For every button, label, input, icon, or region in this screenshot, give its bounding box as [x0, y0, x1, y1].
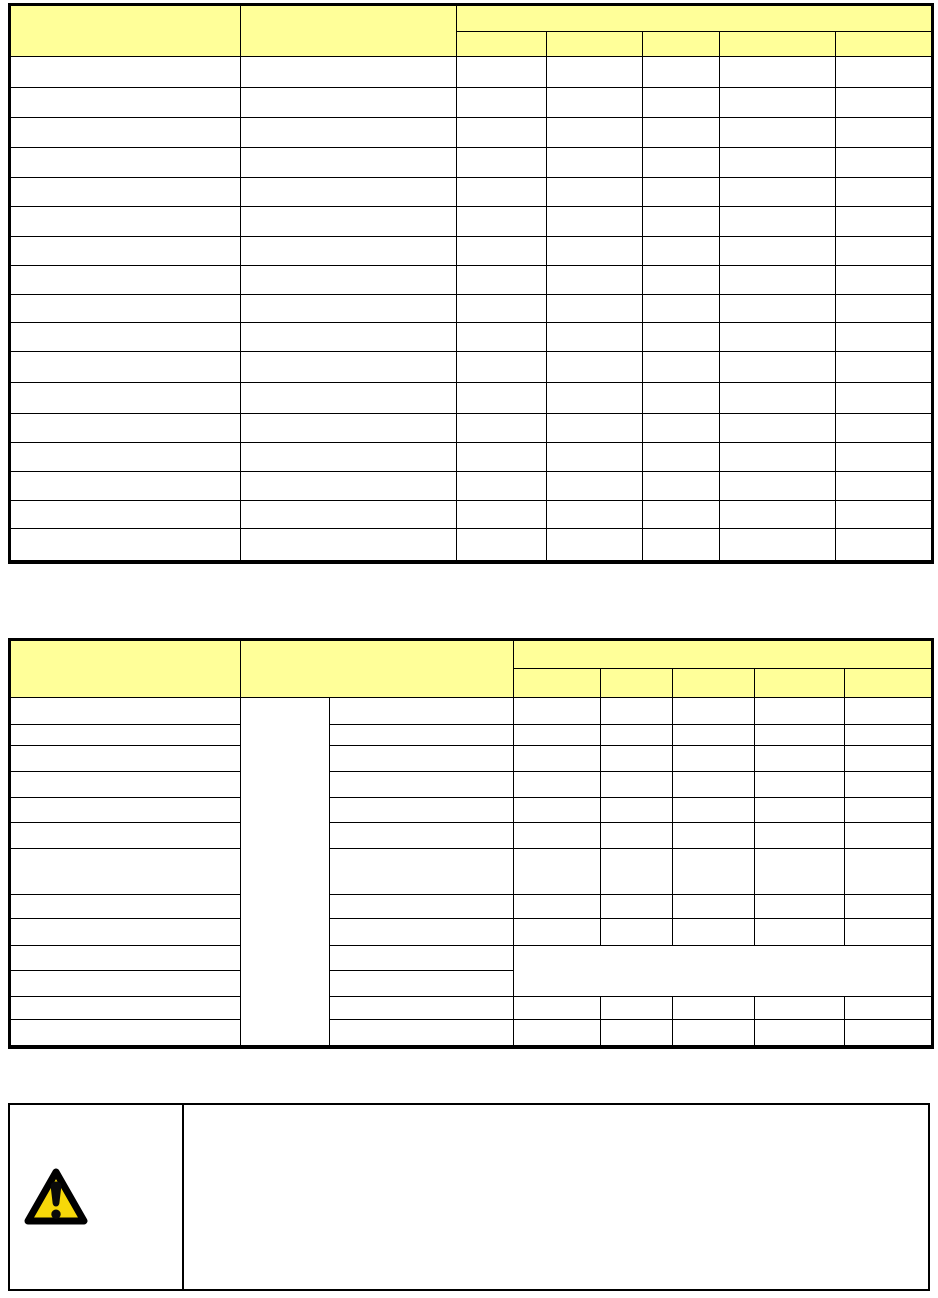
- table1-cell: [547, 57, 643, 88]
- table2-cell: [845, 798, 933, 823]
- table1-cell: [10, 383, 241, 414]
- table2-cell: [601, 798, 673, 823]
- table2-cell: [514, 798, 601, 823]
- table1-cell: [547, 88, 643, 118]
- table1-cell: [10, 148, 241, 178]
- table1-row: [10, 57, 933, 88]
- table2-cell: [330, 946, 514, 971]
- table1-subheader-1: [457, 32, 547, 57]
- table1-cell: [720, 237, 836, 266]
- table1-cell: [836, 352, 933, 383]
- table2-header-col1: [10, 640, 241, 698]
- table1-cell: [241, 529, 457, 562]
- table1-cell: [241, 501, 457, 529]
- table2-subheader-1: [514, 669, 601, 698]
- table2-cell: [330, 823, 514, 849]
- table2-cell: [601, 997, 673, 1020]
- table1-row: [10, 352, 933, 383]
- table2-cell: [673, 772, 755, 798]
- table2-cell: [330, 919, 514, 946]
- table2-cell: [514, 772, 601, 798]
- table2-cell: [10, 798, 241, 823]
- table1-row: [10, 529, 933, 562]
- table2-cell: [10, 946, 241, 971]
- table2-row: [10, 997, 933, 1020]
- table1-cell: [720, 178, 836, 207]
- table1-cell: [241, 88, 457, 118]
- table1-cell: [241, 295, 457, 323]
- table1-cell: [643, 414, 720, 443]
- table2-cell: [330, 772, 514, 798]
- table2-cell: [10, 823, 241, 849]
- table1-cell: [720, 323, 836, 352]
- table2-row: [10, 798, 933, 823]
- spec-table-2: [8, 638, 934, 1049]
- table2-cell: [845, 772, 933, 798]
- table2-cell: [601, 772, 673, 798]
- table2-cell: [10, 971, 241, 997]
- table2-subheader-5: [845, 669, 933, 698]
- table1-cell: [241, 352, 457, 383]
- table1-cell: [10, 472, 241, 501]
- table1-cell: [836, 383, 933, 414]
- table1-cell: [547, 148, 643, 178]
- table1-row: [10, 414, 933, 443]
- table1-cell: [643, 148, 720, 178]
- table2-cell: [330, 798, 514, 823]
- table1-cell: [241, 443, 457, 472]
- table2-cell: [673, 725, 755, 746]
- table1-cell: [836, 88, 933, 118]
- table2-cell: [330, 746, 514, 772]
- table1-cell: [643, 443, 720, 472]
- table1-cell: [720, 148, 836, 178]
- table2-cell: [10, 746, 241, 772]
- table1-cell: [457, 266, 547, 295]
- table2-subheader-2: [601, 669, 673, 698]
- table1-cell: [547, 529, 643, 562]
- table2-cell: [10, 997, 241, 1020]
- table2-cell: [10, 772, 241, 798]
- table2-cell: [10, 1020, 241, 1047]
- table2-cell: [755, 895, 845, 919]
- table1-cell: [836, 178, 933, 207]
- table1-cell: [643, 118, 720, 148]
- table1-cell: [836, 295, 933, 323]
- table1-cell: [836, 323, 933, 352]
- table1-cell: [720, 266, 836, 295]
- table1-cell: [241, 414, 457, 443]
- table2-cell: [755, 746, 845, 772]
- table2-cell: [330, 997, 514, 1020]
- table1-cell: [457, 237, 547, 266]
- table2-cell: [845, 849, 933, 895]
- table1-cell: [643, 207, 720, 237]
- table1-row: [10, 178, 933, 207]
- table2-cell: [845, 823, 933, 849]
- table1-cell: [643, 178, 720, 207]
- table2-cell: [845, 746, 933, 772]
- table2-cell: [514, 895, 601, 919]
- table1-row: [10, 443, 933, 472]
- table1-cell: [457, 501, 547, 529]
- table1-cell: [643, 529, 720, 562]
- table2-cell: [845, 895, 933, 919]
- table2-cell: [330, 698, 514, 725]
- table1-cell: [643, 57, 720, 88]
- caution-text-cell: [184, 1105, 928, 1289]
- table1-row: [10, 323, 933, 352]
- table2-cell: [845, 919, 933, 946]
- table2-cell: [514, 823, 601, 849]
- spec-table-1: [8, 3, 934, 564]
- table1-cell: [457, 323, 547, 352]
- table1-cell: [547, 501, 643, 529]
- table1-cell: [547, 472, 643, 501]
- table1-header: [10, 5, 933, 57]
- table1-cell: [720, 443, 836, 472]
- table1-cell: [10, 352, 241, 383]
- table2-cell: [673, 798, 755, 823]
- table1-cell: [457, 472, 547, 501]
- table2-cell: [845, 1020, 933, 1047]
- table1-header-group-title: [457, 5, 933, 32]
- table1-cell: [10, 501, 241, 529]
- table2-cell: [601, 1020, 673, 1047]
- table1-cell: [241, 148, 457, 178]
- table1-cell: [643, 383, 720, 414]
- table2-cell: [514, 849, 601, 895]
- table2-cell: [330, 725, 514, 746]
- table1-cell: [241, 178, 457, 207]
- table1-cell: [241, 383, 457, 414]
- caution-box: [8, 1103, 930, 1291]
- table1-row: [10, 295, 933, 323]
- table2-cell: [755, 772, 845, 798]
- table2-row: [10, 895, 933, 919]
- table1-cell: [547, 178, 643, 207]
- table1-cell: [457, 118, 547, 148]
- table1-cell: [720, 207, 836, 237]
- table2-cell: [601, 849, 673, 895]
- table1-cell: [457, 178, 547, 207]
- table1-cell: [547, 266, 643, 295]
- table1-cell: [836, 237, 933, 266]
- table2-row: [10, 849, 933, 895]
- table1-cell: [10, 57, 241, 88]
- table1-row: [10, 118, 933, 148]
- table1-body: [10, 57, 933, 562]
- table1-cell: [720, 88, 836, 118]
- table1-cell: [547, 118, 643, 148]
- table1-subheader-4: [720, 32, 836, 57]
- table1-cell: [643, 501, 720, 529]
- table1-cell: [643, 88, 720, 118]
- table1-cell: [10, 323, 241, 352]
- table1-cell: [643, 323, 720, 352]
- table1-cell: [720, 57, 836, 88]
- document-page: [0, 0, 938, 1298]
- table2-cell: [601, 823, 673, 849]
- table2-cell: [755, 919, 845, 946]
- table1-cell: [10, 414, 241, 443]
- table1-cell: [643, 295, 720, 323]
- table1-cell: [836, 443, 933, 472]
- table1-cell: [457, 148, 547, 178]
- table1-cell: [241, 207, 457, 237]
- table1-cell: [10, 443, 241, 472]
- table2-cell: [755, 849, 845, 895]
- table1-cell: [457, 88, 547, 118]
- table1-cell: [547, 323, 643, 352]
- table1-cell: [836, 472, 933, 501]
- table2-row: [10, 946, 933, 971]
- table2-cell: [673, 1020, 755, 1047]
- table1-cell: [836, 57, 933, 88]
- table2-cell: [845, 698, 933, 725]
- table1-cell: [547, 295, 643, 323]
- table1-cell: [457, 443, 547, 472]
- table1-cell: [836, 414, 933, 443]
- table2-cell: [514, 997, 601, 1020]
- table2-cell: [10, 849, 241, 895]
- table1-row: [10, 207, 933, 237]
- table1-cell: [10, 207, 241, 237]
- table2-cell: [755, 698, 845, 725]
- table1-row: [10, 501, 933, 529]
- table1-cell: [457, 352, 547, 383]
- table1-cell: [10, 295, 241, 323]
- table1-cell: [720, 529, 836, 562]
- table1-cell: [457, 414, 547, 443]
- table2-cell: [601, 725, 673, 746]
- table2-row: [10, 725, 933, 746]
- caution-icon-cell: [10, 1105, 184, 1289]
- table1-cell: [643, 266, 720, 295]
- table1-subheader-3: [643, 32, 720, 57]
- table2-cell: [673, 698, 755, 725]
- table2-cell: [673, 746, 755, 772]
- table1-cell: [457, 57, 547, 88]
- table1-cell: [457, 529, 547, 562]
- table1-cell: [836, 207, 933, 237]
- table1-cell: [836, 148, 933, 178]
- table1-cell: [10, 88, 241, 118]
- table1-cell: [457, 383, 547, 414]
- table2-cell: [514, 746, 601, 772]
- table1-cell: [457, 295, 547, 323]
- table2-cell: [673, 895, 755, 919]
- table2-cell: [514, 725, 601, 746]
- table1-row: [10, 88, 933, 118]
- table2-cell: [10, 725, 241, 746]
- table2-header-row-1: [10, 640, 933, 669]
- table2-cell: [514, 698, 601, 725]
- table2-cell: [673, 823, 755, 849]
- table1-cell: [836, 266, 933, 295]
- table2-cell: [755, 725, 845, 746]
- table1-cell: [720, 118, 836, 148]
- table2-cell: [10, 698, 241, 725]
- table1-cell: [720, 383, 836, 414]
- table1-cell: [10, 118, 241, 148]
- table1-cell: [241, 472, 457, 501]
- table1-cell: [547, 383, 643, 414]
- table2-subheader-4: [755, 669, 845, 698]
- table1-cell: [547, 443, 643, 472]
- table2-cell: [601, 746, 673, 772]
- table2-cell: [673, 997, 755, 1020]
- table1-subheader-2: [547, 32, 643, 57]
- table2-cell: [330, 849, 514, 895]
- table2-cell: [330, 895, 514, 919]
- table1-cell: [457, 207, 547, 237]
- table1-cell: [720, 414, 836, 443]
- table1-row: [10, 266, 933, 295]
- table2-cell: [601, 919, 673, 946]
- table2-body: [10, 698, 933, 1047]
- table2-cell: [601, 895, 673, 919]
- table1-cell: [643, 352, 720, 383]
- table1-cell: [241, 323, 457, 352]
- table2-header-group-title: [514, 640, 933, 669]
- table2-merged-span-cell: [514, 946, 933, 997]
- table2-cell: [673, 849, 755, 895]
- table1-cell: [10, 266, 241, 295]
- table2-cell: [755, 997, 845, 1020]
- table1-cell: [643, 237, 720, 266]
- table2-row: [10, 746, 933, 772]
- table2-row: [10, 772, 933, 798]
- table2-cell: [845, 997, 933, 1020]
- table1-header-row-1: [10, 5, 933, 32]
- table2-row: [10, 823, 933, 849]
- table2-row: [10, 698, 933, 725]
- table2-cell: [755, 798, 845, 823]
- table2-header-col2: [241, 640, 514, 698]
- table1-cell: [241, 237, 457, 266]
- table1-cell: [720, 295, 836, 323]
- table1-row: [10, 472, 933, 501]
- table1-cell: [720, 472, 836, 501]
- table1-row: [10, 383, 933, 414]
- table1-cell: [10, 178, 241, 207]
- table1-cell: [547, 352, 643, 383]
- table1-cell: [10, 529, 241, 562]
- table1-cell: [241, 118, 457, 148]
- table1-cell: [720, 501, 836, 529]
- table1-cell: [10, 237, 241, 266]
- table1-cell: [241, 266, 457, 295]
- table1-header-col1: [10, 5, 241, 57]
- table2-row: [10, 1020, 933, 1047]
- table2-header: [10, 640, 933, 698]
- table1-cell: [643, 472, 720, 501]
- table1-header-col2: [241, 5, 457, 57]
- table1-row: [10, 237, 933, 266]
- warning-triangle-icon: [24, 1167, 88, 1227]
- table2-cell: [845, 725, 933, 746]
- table2-cell: [601, 698, 673, 725]
- table1-cell: [836, 529, 933, 562]
- table2-cell: [755, 823, 845, 849]
- table1-cell: [720, 352, 836, 383]
- table2-cell: [330, 1020, 514, 1047]
- table1-row: [10, 148, 933, 178]
- table2-subheader-3: [673, 669, 755, 698]
- table2-cell: [755, 1020, 845, 1047]
- table2-cell: [10, 919, 241, 946]
- table2-cell: [673, 919, 755, 946]
- table1-cell: [241, 57, 457, 88]
- table2-cell: [514, 1020, 601, 1047]
- table1-cell: [547, 414, 643, 443]
- table2-cell: [330, 971, 514, 997]
- table1-cell: [836, 501, 933, 529]
- table1-cell: [547, 207, 643, 237]
- table1-cell: [836, 118, 933, 148]
- table2-row: [10, 919, 933, 946]
- table2-cell: [514, 919, 601, 946]
- table1-subheader-5: [836, 32, 933, 57]
- table1-cell: [547, 237, 643, 266]
- table2-cell: [10, 895, 241, 919]
- table2-merged-column-cell: [241, 698, 330, 1047]
